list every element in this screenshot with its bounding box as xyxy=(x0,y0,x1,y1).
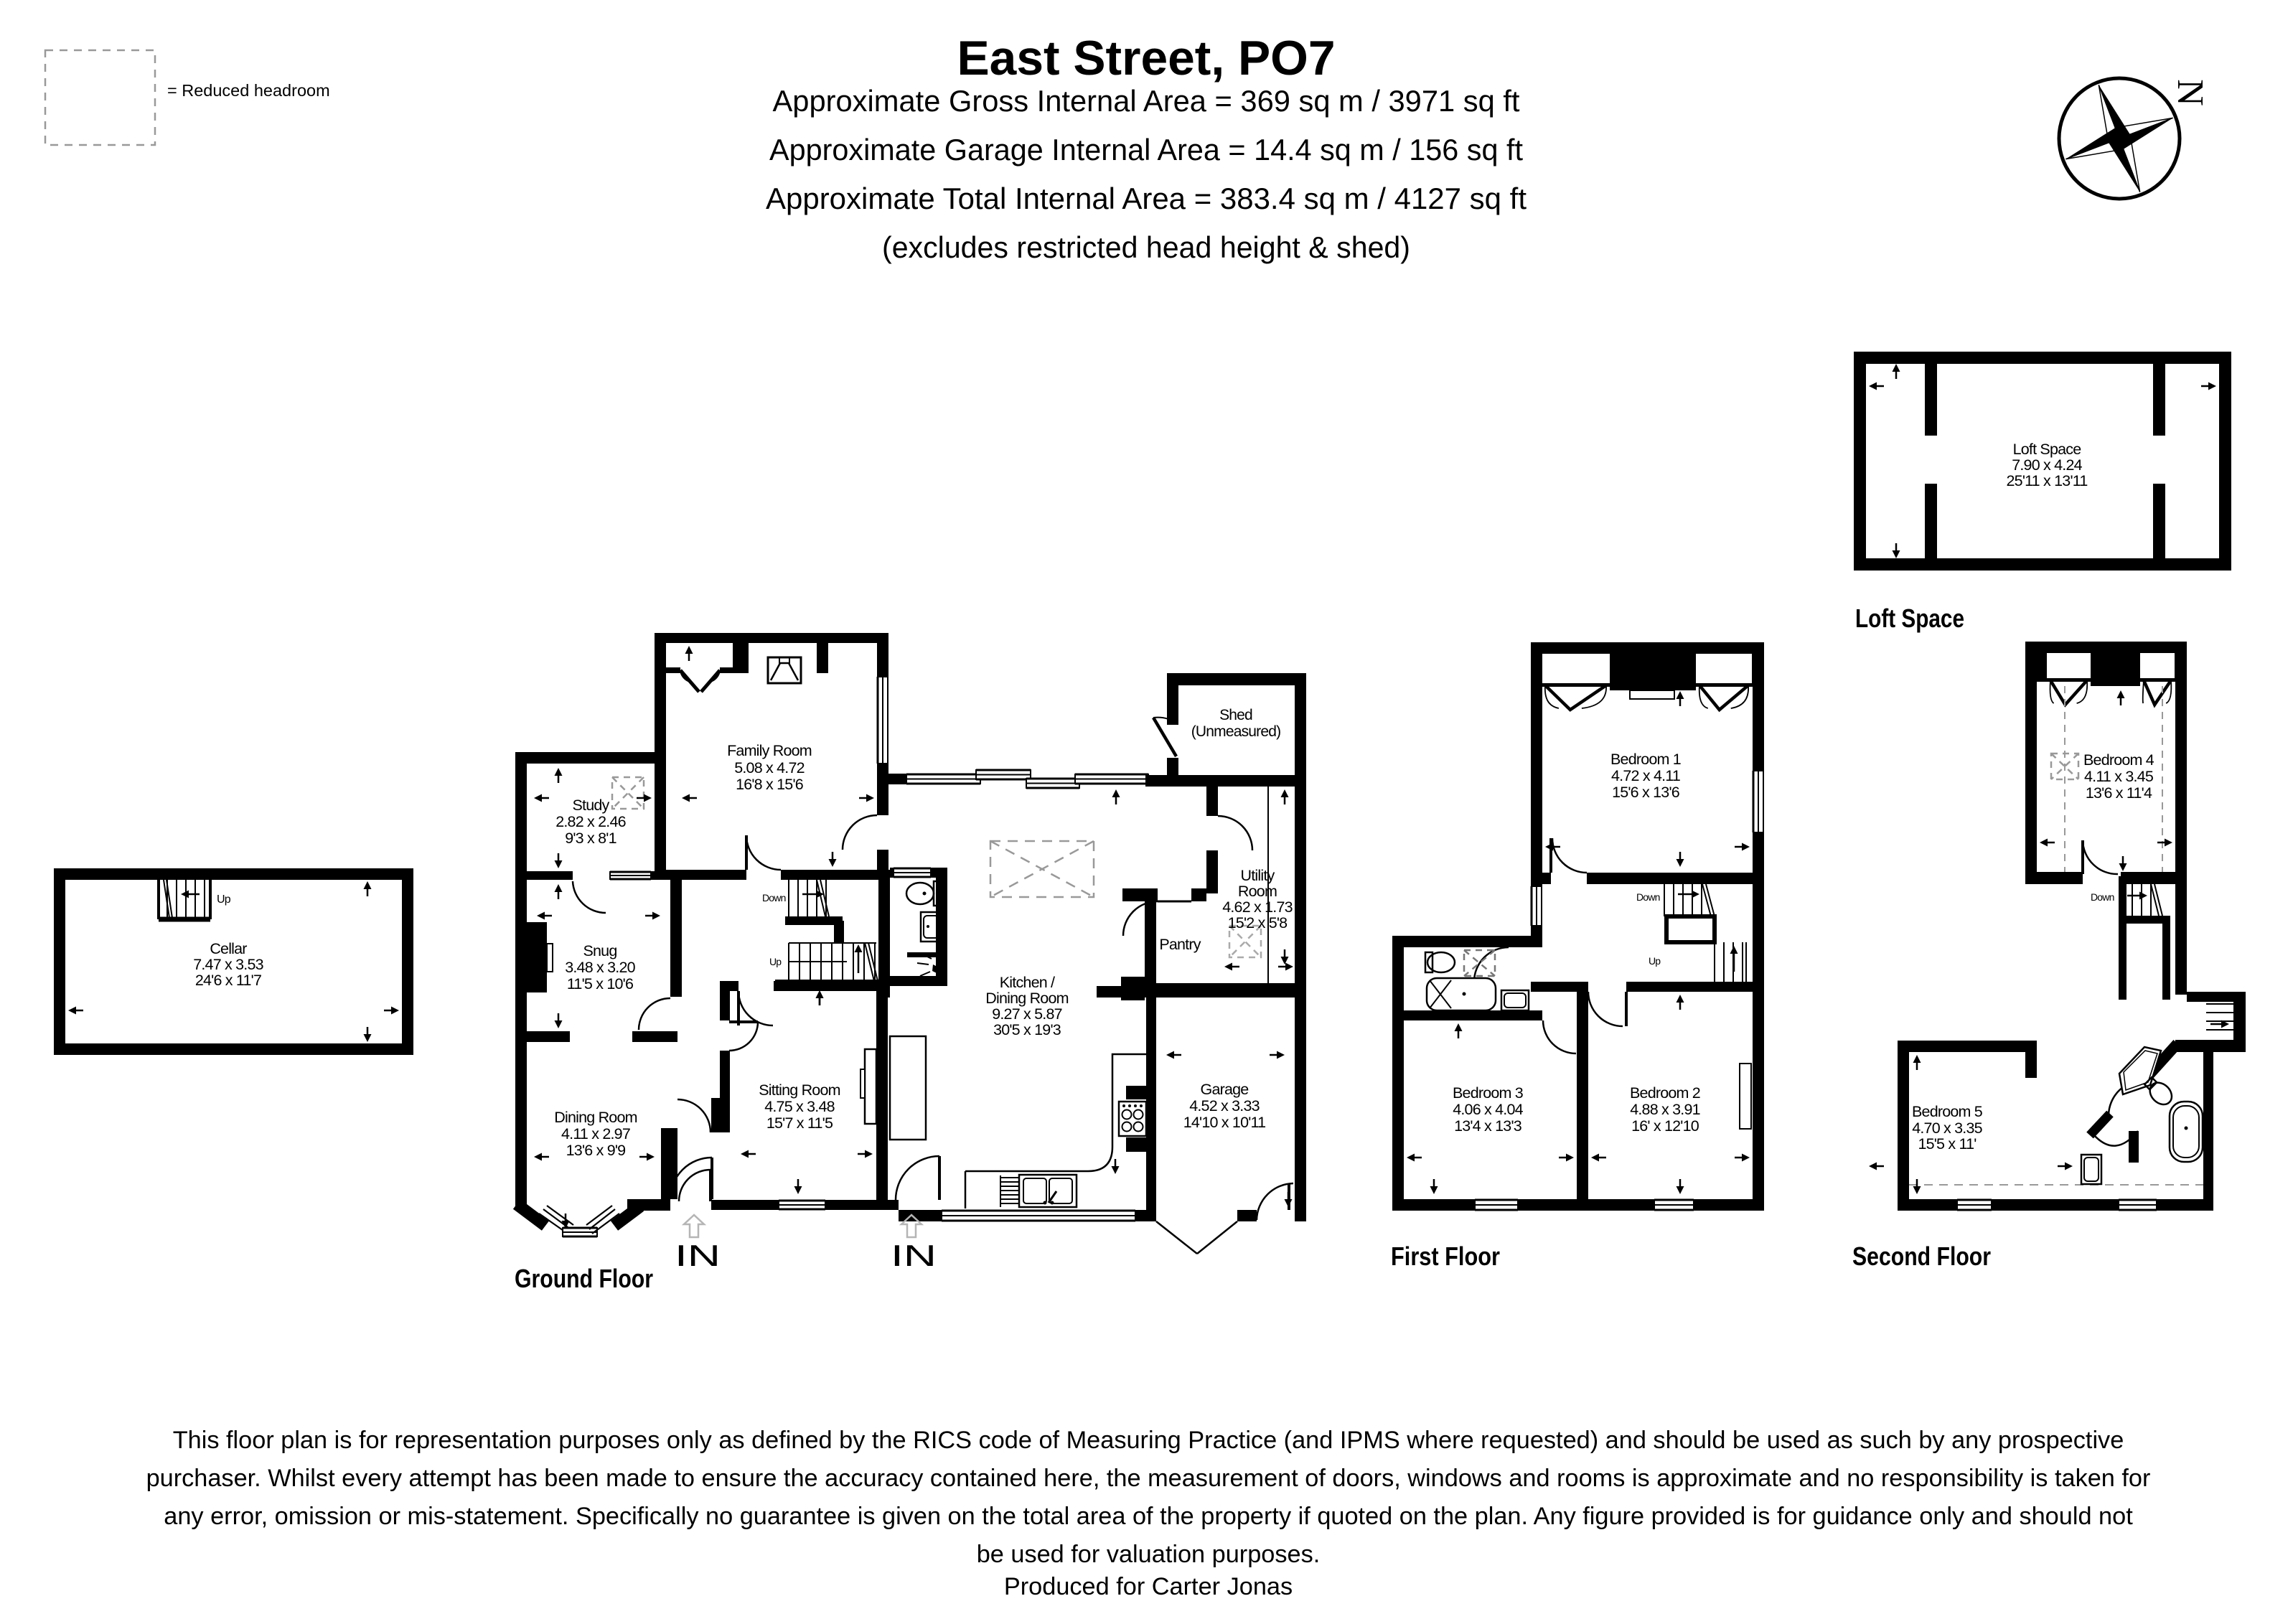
svg-text:4.11 x 2.97: 4.11 x 2.97 xyxy=(561,1125,630,1142)
svg-text:15'5 x 11': 15'5 x 11' xyxy=(1918,1135,1977,1153)
svg-text:7.90 x 4.24: 7.90 x 4.24 xyxy=(2012,456,2082,474)
svg-text:7.47 x 3.53: 7.47 x 3.53 xyxy=(193,956,263,973)
svg-text:IN: IN xyxy=(891,1239,937,1272)
svg-text:be used for valuation purposes: be used for valuation purposes. xyxy=(977,1541,1321,1568)
svg-text:13'4 x 13'3: 13'4 x 13'3 xyxy=(1454,1117,1522,1135)
svg-text:purchaser. Whilst every attemp: purchaser. Whilst every attempt has been… xyxy=(146,1465,2151,1492)
svg-text:13'6 x 11'4: 13'6 x 11'4 xyxy=(2086,784,2152,802)
svg-text:Dining Room: Dining Room xyxy=(554,1109,637,1126)
svg-text:Kitchen /: Kitchen / xyxy=(1000,974,1055,991)
svg-text:Up: Up xyxy=(769,956,782,967)
svg-text:Down: Down xyxy=(762,892,786,903)
svg-text:24'6 x 11'7: 24'6 x 11'7 xyxy=(195,972,261,989)
svg-text:Approximate Total Internal Are: Approximate Total Internal Area = 383.4 … xyxy=(766,182,1527,215)
svg-text:4.75 x 3.48: 4.75 x 3.48 xyxy=(764,1098,835,1115)
svg-text:3.48 x 3.20: 3.48 x 3.20 xyxy=(565,959,635,976)
svg-text:East Street, PO7: East Street, PO7 xyxy=(957,32,1336,85)
svg-text:Study: Study xyxy=(573,797,610,814)
svg-text:9'3 x 8'1: 9'3 x 8'1 xyxy=(565,830,616,847)
svg-text:4.70 x 3.35: 4.70 x 3.35 xyxy=(1912,1120,1982,1137)
svg-text:4.52 x 3.33: 4.52 x 3.33 xyxy=(1189,1097,1260,1114)
svg-text:N: N xyxy=(2170,79,2210,106)
svg-text:Ground Floor: Ground Floor xyxy=(515,1264,653,1293)
svg-text:(excludes restricted head heig: (excludes restricted head height & shed) xyxy=(882,230,1410,264)
svg-text:Loft Space: Loft Space xyxy=(2013,441,2081,458)
svg-text:Approximate Garage Internal Ar: Approximate Garage Internal Area = 14.4 … xyxy=(769,133,1523,166)
svg-text:13'6 x 9'9: 13'6 x 9'9 xyxy=(566,1142,626,1159)
svg-text:Down: Down xyxy=(2091,891,2114,903)
svg-text:This floor plan is for represe: This floor plan is for representation pu… xyxy=(173,1427,2124,1454)
svg-text:Cellar: Cellar xyxy=(210,940,247,957)
svg-text:Up: Up xyxy=(1649,955,1661,967)
svg-text:= Reduced headroom: = Reduced headroom xyxy=(167,81,330,100)
svg-text:Garage: Garage xyxy=(1201,1081,1249,1098)
svg-text:4.88 x 3.91: 4.88 x 3.91 xyxy=(1630,1101,1700,1118)
svg-text:16'8 x 15'6: 16'8 x 15'6 xyxy=(736,776,804,793)
svg-text:Second Floor: Second Floor xyxy=(1852,1242,1991,1271)
svg-text:2.82 x 2.46: 2.82 x 2.46 xyxy=(555,813,626,830)
svg-text:30'5 x 19'3: 30'5 x 19'3 xyxy=(993,1021,1061,1038)
svg-text:Up: Up xyxy=(217,893,231,906)
svg-text:Down: Down xyxy=(1636,891,1660,903)
svg-text:4.11 x 3.45: 4.11 x 3.45 xyxy=(2084,768,2154,785)
svg-text:9.27 x 5.87: 9.27 x 5.87 xyxy=(992,1005,1062,1023)
svg-text:14'10 x 10'11: 14'10 x 10'11 xyxy=(1183,1114,1266,1131)
svg-text:Shed: Shed xyxy=(1219,707,1252,723)
svg-text:4.72 x 4.11: 4.72 x 4.11 xyxy=(1611,767,1680,784)
svg-text:15'7 x 11'5: 15'7 x 11'5 xyxy=(766,1114,833,1132)
svg-text:Produced for Carter Jonas: Produced for Carter Jonas xyxy=(1004,1573,1293,1600)
svg-text:(Unmeasured): (Unmeasured) xyxy=(1191,723,1281,740)
svg-text:Sitting Room: Sitting Room xyxy=(759,1081,840,1099)
svg-text:Room: Room xyxy=(1238,883,1277,900)
svg-text:5.08 x 4.72: 5.08 x 4.72 xyxy=(734,759,805,776)
svg-text:4.62 x 1.73: 4.62 x 1.73 xyxy=(1222,898,1293,916)
svg-text:15'6 x 13'6: 15'6 x 13'6 xyxy=(1612,784,1680,801)
svg-text:First Floor: First Floor xyxy=(1391,1242,1500,1271)
svg-text:Snug: Snug xyxy=(583,942,616,959)
svg-text:Approximate Gross Internal Are: Approximate Gross Internal Area = 369 sq… xyxy=(773,84,1520,118)
svg-text:Utility: Utility xyxy=(1241,867,1275,884)
svg-text:Bedroom 1: Bedroom 1 xyxy=(1610,751,1681,768)
svg-text:15'2 x 5'8: 15'2 x 5'8 xyxy=(1228,914,1288,931)
svg-text:11'5 x 10'6: 11'5 x 10'6 xyxy=(567,975,634,992)
svg-text:4.06 x 4.04: 4.06 x 4.04 xyxy=(1453,1101,1523,1118)
svg-text:25'11 x 13'11: 25'11 x 13'11 xyxy=(2007,472,2088,489)
svg-text:Loft Space: Loft Space xyxy=(1855,604,1964,633)
svg-text:Bedroom 4: Bedroom 4 xyxy=(2083,751,2154,769)
svg-text:Pantry: Pantry xyxy=(1159,936,1201,953)
svg-text:IN: IN xyxy=(675,1239,721,1272)
svg-text:any error, omission or mis-sta: any error, omission or mis-statement. Sp… xyxy=(164,1503,2133,1530)
svg-text:Bedroom 5: Bedroom 5 xyxy=(1912,1103,1983,1120)
svg-text:Family Room: Family Room xyxy=(727,742,812,759)
svg-text:Bedroom 3: Bedroom 3 xyxy=(1453,1084,1524,1102)
svg-text:Dining Room: Dining Room xyxy=(985,990,1068,1007)
svg-text:16' x 12'10: 16' x 12'10 xyxy=(1631,1117,1699,1135)
svg-text:Bedroom 2: Bedroom 2 xyxy=(1630,1084,1700,1102)
